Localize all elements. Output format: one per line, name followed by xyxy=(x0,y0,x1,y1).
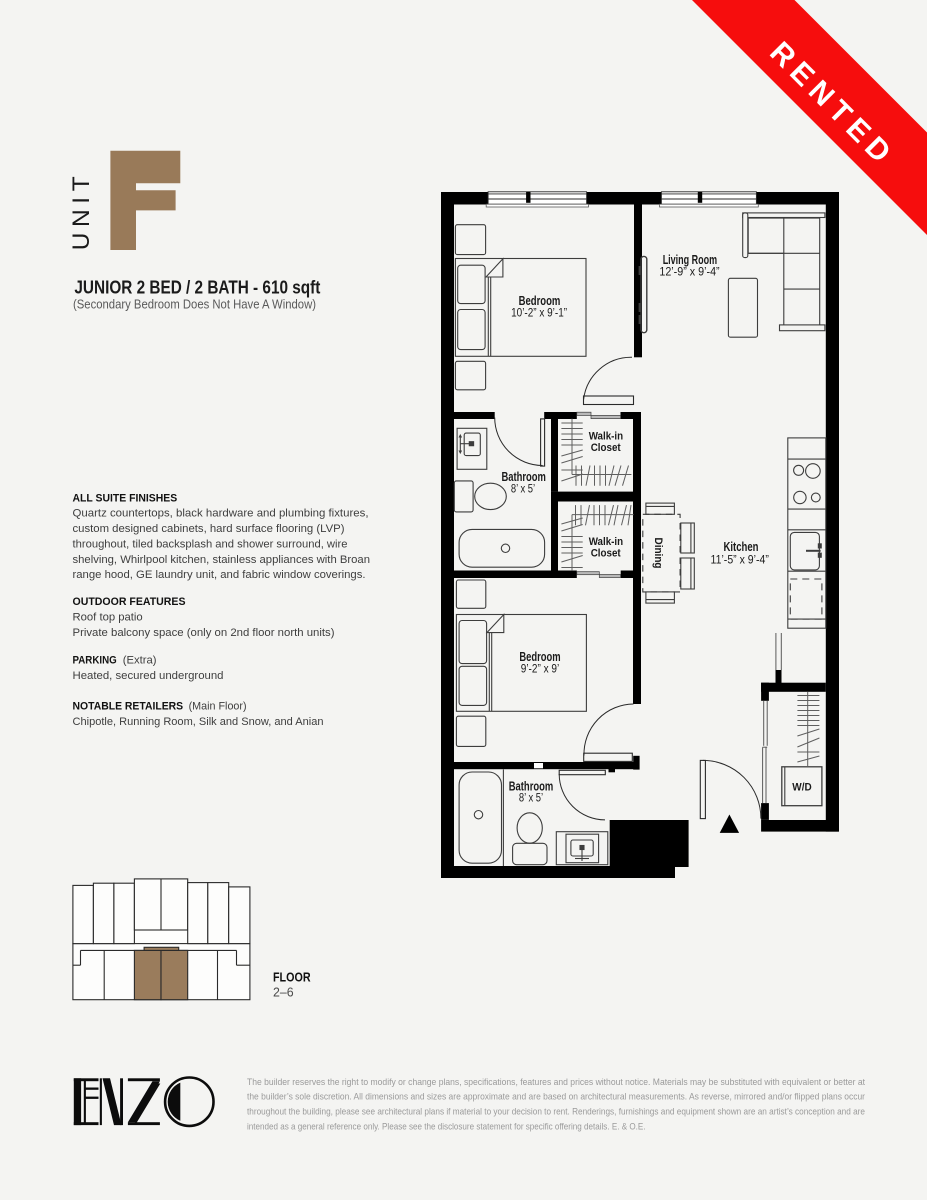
svg-text:12’-9” x 9’-4”: 12’-9” x 9’-4” xyxy=(659,265,719,279)
svg-text:Roof top patio: Roof top patio xyxy=(73,612,143,624)
svg-text:Quartz countertops, black hard: Quartz countertops, black hardware and p… xyxy=(73,508,369,520)
svg-text:11’-5” x 9’-4”: 11’-5” x 9’-4” xyxy=(711,553,769,567)
svg-text:intended as a general referenc: intended as a general reference only. Pl… xyxy=(247,1121,646,1132)
svg-text:Private balcony space (only on: Private balcony space (only on 2nd floor… xyxy=(73,627,335,639)
svg-text:Closet: Closet xyxy=(591,547,621,559)
svg-text:9’-2” x 9’: 9’-2” x 9’ xyxy=(521,661,560,675)
svg-text:NOTABLE RETAILERS: NOTABLE RETAILERS xyxy=(73,701,184,713)
svg-text:Walk-in: Walk-in xyxy=(589,431,623,443)
svg-text:8’ x 5’: 8’ x 5’ xyxy=(511,481,535,495)
svg-text:The builder reserves the right: The builder reserves the right to modify… xyxy=(247,1077,865,1088)
svg-text:(Extra): (Extra) xyxy=(123,655,157,667)
svg-text:2–6: 2–6 xyxy=(273,985,294,1000)
svg-text:Dining: Dining xyxy=(652,538,664,569)
svg-text:Chipotle, Running Room, Silk a: Chipotle, Running Room, Silk and Snow, a… xyxy=(73,716,324,728)
svg-text:range hood, GE laundry unit, a: range hood, GE laundry unit, and fabric … xyxy=(73,569,366,581)
svg-text:UNIT: UNIT xyxy=(68,176,95,250)
svg-text:OUTDOOR FEATURES: OUTDOOR FEATURES xyxy=(73,596,186,608)
svg-text:the builder’s sole discretion.: the builder’s sole discretion. All dimen… xyxy=(247,1092,865,1103)
svg-text:8’ x 5’: 8’ x 5’ xyxy=(519,791,543,805)
svg-text:custom designed cabinets, hard: custom designed cabinets, hard surface f… xyxy=(73,523,345,535)
svg-text:(Secondary Bedroom Does Not Ha: (Secondary Bedroom Does Not Have A Windo… xyxy=(73,297,316,312)
svg-text:Closet: Closet xyxy=(591,442,621,454)
svg-text:shelving, Whirlpool kitchen, s: shelving, Whirlpool kitchen, stainless a… xyxy=(73,554,371,566)
svg-text:Heated, secured underground: Heated, secured underground xyxy=(73,670,224,682)
svg-text:Walk-in: Walk-in xyxy=(589,536,623,548)
svg-text:PARKING: PARKING xyxy=(73,655,117,667)
svg-text:(Main Floor): (Main Floor) xyxy=(189,701,247,713)
svg-text:W/D: W/D xyxy=(792,782,811,794)
svg-text:throughout, tiled backsplash a: throughout, tiled backsplash and shower … xyxy=(73,538,348,550)
svg-text:FLOOR: FLOOR xyxy=(273,970,311,985)
svg-text:JUNIOR 2 BED / 2 BATH - 610 sq: JUNIOR 2 BED / 2 BATH - 610 sqft xyxy=(74,276,320,297)
svg-text:throughout the building, pleas: throughout the building, please see arch… xyxy=(247,1107,865,1118)
svg-text:ALL SUITE FINISHES: ALL SUITE FINISHES xyxy=(73,493,178,505)
svg-text:10’-2” x 9’-1”: 10’-2” x 9’-1” xyxy=(511,306,567,320)
